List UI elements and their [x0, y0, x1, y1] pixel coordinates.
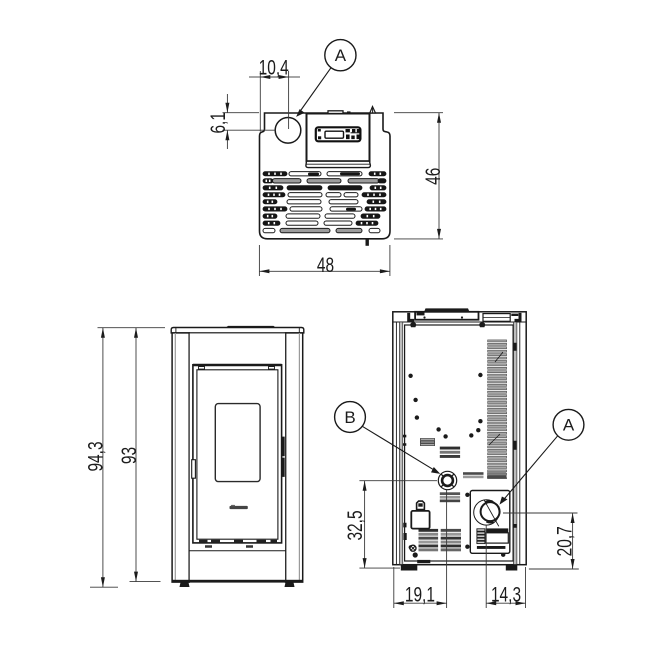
- svg-text:14,3: 14,3: [491, 582, 521, 606]
- svg-text:10,4: 10,4: [259, 55, 289, 79]
- svg-text:19,1: 19,1: [405, 582, 435, 606]
- svg-text:20,7: 20,7: [552, 526, 576, 556]
- svg-text:6,1: 6,1: [205, 112, 229, 134]
- svg-text:94,3: 94,3: [83, 441, 107, 471]
- svg-text:32,5: 32,5: [343, 510, 367, 540]
- svg-text:93: 93: [116, 447, 140, 464]
- svg-text:A: A: [335, 46, 347, 65]
- svg-text:48: 48: [317, 252, 334, 276]
- svg-text:B: B: [344, 408, 355, 427]
- svg-text:A: A: [563, 416, 575, 435]
- svg-text:46: 46: [420, 168, 444, 185]
